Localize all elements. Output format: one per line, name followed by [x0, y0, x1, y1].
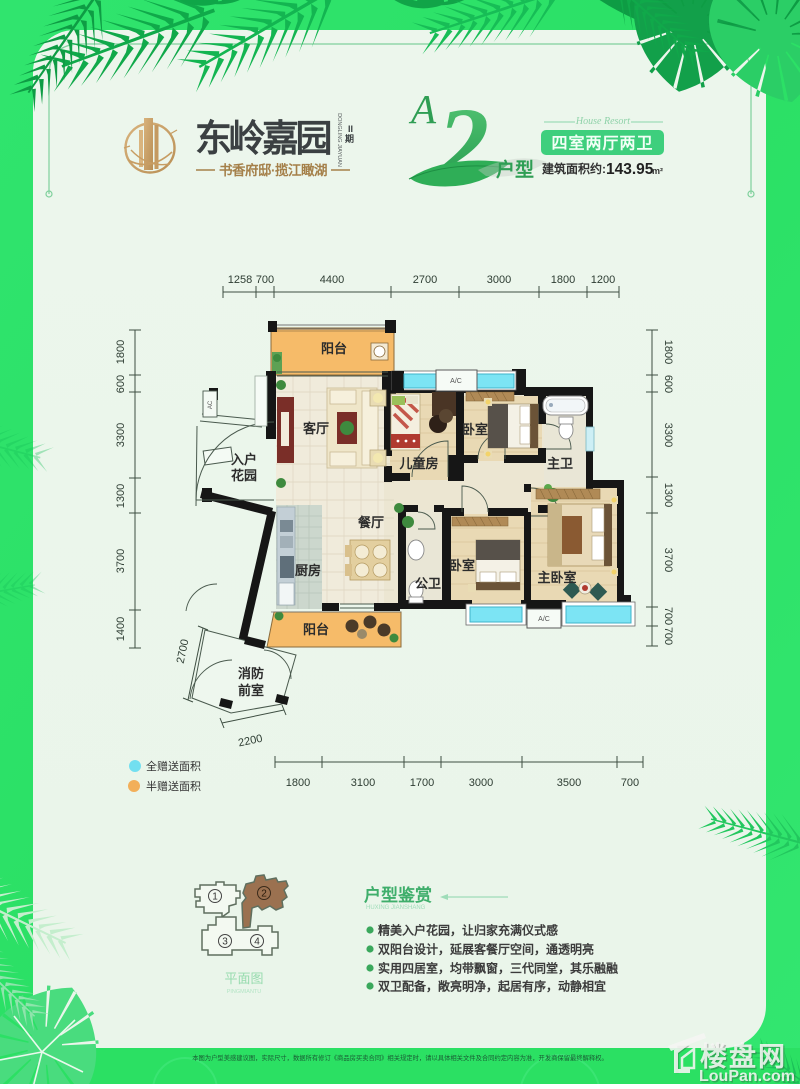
svg-text:3000: 3000: [469, 777, 493, 789]
svg-text:700: 700: [621, 777, 639, 789]
svg-text:全赠送面积: 全赠送面积: [146, 759, 201, 773]
svg-text:1: 1: [212, 892, 218, 903]
svg-text:书香府邸·揽江瞰湖: 书香府邸·揽江瞰湖: [219, 162, 327, 178]
svg-text:双阳台设计，延展客餐厅空间，通透明亮: 双阳台设计，延展客餐厅空间，通透明亮: [378, 942, 594, 957]
svg-text:户型鉴赏: 户型鉴赏: [364, 885, 432, 905]
svg-text:主卫: 主卫: [547, 456, 573, 471]
svg-text:3300: 3300: [115, 423, 127, 447]
svg-text:PINGMIANTU: PINGMIANTU: [227, 989, 262, 995]
svg-text:厨房: 厨房: [295, 563, 321, 578]
svg-text:餐厅: 餐厅: [357, 515, 384, 530]
svg-text:入户: 入户: [231, 452, 257, 467]
svg-text:3000: 3000: [487, 274, 511, 286]
svg-text:LouPan.com: LouPan.com: [699, 1068, 795, 1084]
svg-text:600: 600: [662, 375, 674, 393]
svg-text:2: 2: [261, 889, 267, 900]
svg-text:3300: 3300: [662, 423, 674, 447]
svg-text:DONGLING JIAYUAN: DONGLING JIAYUAN: [336, 113, 342, 167]
svg-text:前室: 前室: [238, 683, 264, 698]
svg-text:半赠送面积: 半赠送面积: [146, 779, 201, 793]
svg-text:2700: 2700: [413, 274, 437, 286]
svg-text:阳台: 阳台: [321, 341, 347, 356]
svg-text:卧室: 卧室: [462, 422, 488, 437]
svg-text:户型: 户型: [496, 158, 534, 181]
svg-text:精美入户花园，让归家充满仪式感: 精美入户花园，让归家充满仪式感: [378, 923, 558, 938]
svg-text:3700: 3700: [662, 548, 674, 572]
svg-text:1800: 1800: [115, 340, 127, 364]
svg-text:3500: 3500: [557, 777, 581, 789]
svg-text:600: 600: [115, 375, 127, 393]
svg-text:A/C: A/C: [450, 378, 462, 385]
svg-text:本图为户型美感建议图，实际尺寸，数据所有修订《商品房买卖合同: 本图为户型美感建议图，实际尺寸，数据所有修订《商品房买卖合同》相关规定时，请以具…: [192, 1053, 608, 1062]
svg-text:花园: 花园: [231, 468, 257, 483]
svg-text:A/C: A/C: [538, 616, 550, 623]
svg-text:1200: 1200: [591, 274, 615, 286]
svg-text:客厅: 客厅: [303, 421, 329, 436]
svg-text:m²: m²: [652, 166, 663, 176]
svg-text:A: A: [408, 86, 437, 132]
svg-text:700: 700: [256, 274, 274, 286]
svg-text:公卫: 公卫: [415, 576, 441, 591]
svg-text:实用四居室，均带飘窗，三代同堂，其乐融融: 实用四居室，均带飘窗，三代同堂，其乐融融: [378, 961, 618, 976]
svg-text:1300: 1300: [662, 483, 674, 507]
svg-text:700: 700: [662, 607, 674, 625]
svg-text:1800: 1800: [286, 777, 310, 789]
svg-text:期: 期: [345, 133, 354, 144]
svg-text:1700: 1700: [410, 777, 434, 789]
svg-text:1800: 1800: [662, 340, 674, 364]
svg-text:东岭嘉园: 东岭嘉园: [195, 118, 330, 159]
svg-text:3700: 3700: [115, 549, 127, 573]
svg-text:House Resort: House Resort: [575, 116, 630, 127]
svg-text:平面图: 平面图: [224, 971, 263, 986]
svg-text:建筑面积约:: 建筑面积约:: [541, 161, 606, 176]
svg-text:1800: 1800: [551, 274, 575, 286]
svg-text:3100: 3100: [351, 777, 375, 789]
svg-text:AC: AC: [208, 400, 214, 409]
svg-text:阳台: 阳台: [303, 622, 329, 637]
svg-text:主卧室: 主卧室: [537, 570, 576, 585]
svg-text:4400: 4400: [320, 274, 344, 286]
svg-text:儿童房: 儿童房: [398, 456, 438, 471]
svg-text:700: 700: [662, 627, 674, 645]
svg-text:4: 4: [254, 937, 260, 948]
svg-text:四室两厅两卫: 四室两厅两卫: [551, 134, 653, 153]
svg-text:1400: 1400: [115, 617, 127, 641]
svg-text:1300: 1300: [115, 484, 127, 508]
svg-text:消防: 消防: [238, 666, 264, 681]
svg-text:143.95: 143.95: [606, 161, 654, 178]
svg-text:双卫配备，敞亮明净，起居有序，动静相宜: 双卫配备，敞亮明净，起居有序，动静相宜: [378, 979, 606, 994]
svg-text:3: 3: [222, 937, 228, 948]
svg-text:卧室: 卧室: [449, 558, 475, 573]
svg-text:HUXING JIANSHANG: HUXING JIANSHANG: [366, 905, 426, 911]
svg-text:1258: 1258: [228, 274, 252, 286]
svg-text:II: II: [348, 124, 353, 134]
